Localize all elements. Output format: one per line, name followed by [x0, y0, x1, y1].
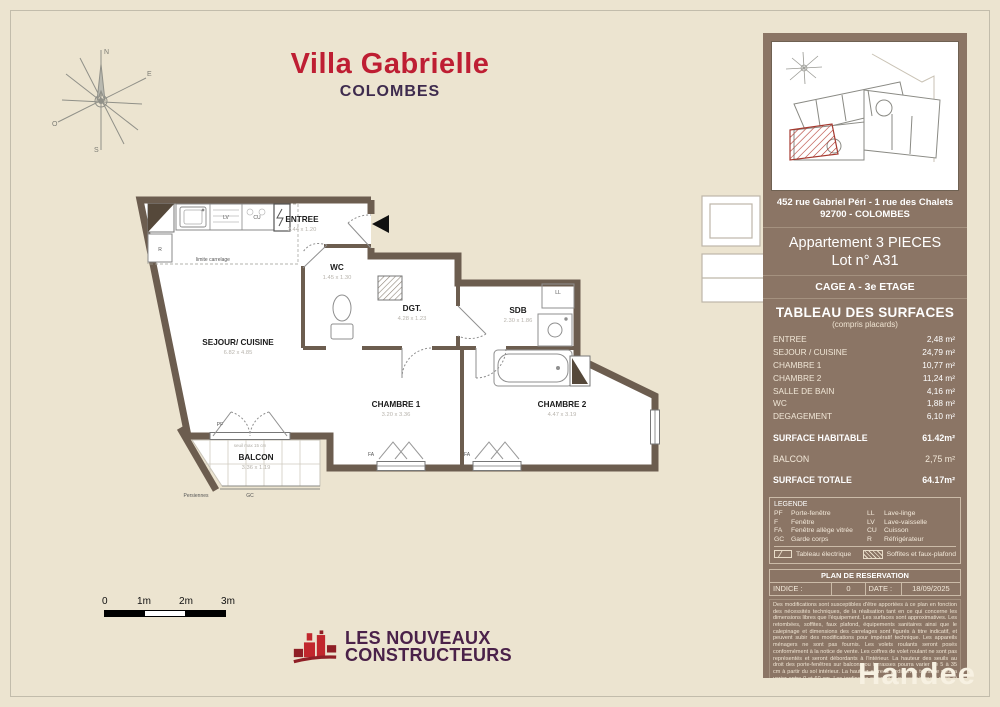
legend-label: Fenêtre — [791, 519, 867, 526]
label-ll: LL — [555, 290, 561, 296]
legend-soffites-label: Soffites et faux-plafond — [887, 551, 956, 558]
info-sidebar: 452 rue Gabriel Péri - 1 rue des Chalets… — [763, 33, 967, 678]
surface-habitable-value: 61.42m² — [922, 433, 955, 443]
floor-plan: ENTREE 2.44 x 1.20 WC 1.45 x 1.30 SEJOUR… — [110, 188, 790, 518]
surface-value: 10,77 m² — [922, 360, 955, 370]
room-label-balcon: BALCON — [238, 453, 273, 462]
label-gc: GC — [246, 493, 254, 499]
indice-label: INDICE : — [770, 583, 832, 595]
surface-label: SALLE DE BAIN — [773, 386, 834, 396]
compass-o-label: O — [52, 121, 58, 128]
surface-value: 6,10 m² — [927, 411, 955, 421]
surface-label: DEGAGEMENT — [773, 411, 832, 421]
address-block: 452 rue Gabriel Péri - 1 rue des Chalets… — [763, 191, 967, 228]
soffite-hatch-box — [378, 276, 402, 300]
residence-name: Villa Gabrielle — [240, 48, 540, 81]
room-dims-chambre1: 3.20 x 3.36 — [382, 412, 411, 418]
label-pf: PF — [217, 422, 223, 428]
subject-lot-highlight — [790, 124, 838, 160]
apartment-type: Appartement 3 PIECES — [763, 234, 967, 252]
surface-balcon-value: 2,75 m² — [925, 454, 955, 464]
scale-tick-2m: 2m — [176, 596, 196, 607]
surface-value: 1,88 m² — [927, 398, 955, 408]
surface-totale-label: SURFACE TOTALE — [773, 475, 852, 485]
legend-title: LEGENDE — [774, 501, 956, 508]
room-label-chambre1: CHAMBRE 1 — [372, 400, 421, 409]
room-dims-sejour: 6.82 x 4.85 — [224, 350, 253, 356]
legend-box: LEGENDE PFPorte-fenêtre LLLave-linge FFe… — [769, 497, 961, 564]
surface-row: SEJOUR / CUISINE24,79 m² — [763, 346, 967, 359]
room-label-sejour: SEJOUR/ CUISINE — [202, 338, 274, 347]
surface-label: WC — [773, 398, 787, 408]
title-block: Villa Gabrielle COLOMBES — [240, 48, 540, 101]
surface-habitable-row: SURFACE HABITABLE61.42m² — [763, 433, 967, 443]
legend-label: Cuisson — [884, 527, 956, 534]
legend-code: R — [867, 536, 884, 543]
builder-logo-icon — [292, 628, 338, 666]
site-plan-map — [772, 42, 958, 188]
label-fa-1: FA — [368, 452, 375, 458]
room-label-entree: ENTREE — [285, 215, 319, 224]
legend-label: Porte-fenêtre — [791, 510, 867, 517]
surfaces-table-title: TABLEAU DES SURFACES — [763, 305, 967, 320]
scale-bar: 0 1m 2m 3m — [102, 596, 238, 617]
legend-code: LV — [867, 519, 884, 526]
surface-row: ENTREE2,48 m² — [763, 333, 967, 346]
compass-rose-icon: N S E O — [46, 44, 156, 154]
surface-value: 24,79 m² — [922, 347, 955, 357]
surface-label: CHAMBRE 2 — [773, 373, 821, 383]
apartment-block: Appartement 3 PIECES Lot n° A31 — [763, 228, 967, 276]
room-dims-chambre2: 4.47 x 3.19 — [548, 412, 577, 418]
room-label-wc: WC — [330, 263, 344, 272]
legend-code: LL — [867, 510, 884, 517]
surface-totale-row: SURFACE TOTALE64.17m² — [763, 475, 967, 485]
surfaces-table-subtitle: (compris placards) — [763, 320, 967, 329]
room-dims-balcon: 3.36 x 1.19 — [242, 465, 271, 471]
legend-label: Lave-vaisselle — [884, 519, 956, 526]
legend-code: CU — [867, 527, 884, 534]
room-dims-entree: 2.44 x 1.20 — [288, 227, 317, 233]
compass-n-label: N — [104, 49, 109, 56]
room-label-chambre2: CHAMBRE 2 — [538, 400, 587, 409]
scale-tick-1m: 1m — [134, 596, 154, 607]
surface-row: DEGAGEMENT6,10 m² — [763, 410, 967, 423]
surface-value: 11,24 m² — [923, 373, 955, 383]
label-lv: LV — [223, 215, 229, 221]
date-value: 18/09/2025 — [902, 583, 960, 595]
thumb-compass-icon — [786, 52, 822, 84]
builder-logo: LES NOUVEAUX CONSTRUCTEURS — [292, 628, 512, 666]
surface-label: CHAMBRE 1 — [773, 360, 821, 370]
surfaces-table: ENTREE2,48 m² SEJOUR / CUISINE24,79 m² C… — [763, 333, 967, 485]
entrance-arrow-icon — [372, 215, 389, 233]
room-label-sdb: SDB — [509, 306, 526, 315]
builder-name-line2: CONSTRUCTEURS — [345, 647, 512, 664]
neighbor-structures — [702, 196, 766, 302]
guardrail — [220, 486, 320, 489]
legend-label: Garde corps — [791, 536, 867, 543]
surface-value: 4,16 m² — [927, 386, 955, 396]
room-dims-sdb: 2.30 x 1.86 — [504, 318, 533, 324]
scale-tick-3m: 3m — [218, 596, 238, 607]
soffite-hatch-icon — [863, 550, 883, 559]
stage-label: CAGE A - 3e ETAGE — [763, 276, 967, 299]
plan-sheet: N S E O Villa Gabrielle COLOMBES — [0, 0, 1000, 707]
scale-ticks: 0 1m 2m 3m — [102, 596, 238, 607]
scale-bar-graphic — [104, 610, 226, 617]
room-dims-wc: 1.45 x 1.30 — [323, 275, 352, 281]
site-plan-thumbnail — [771, 41, 959, 191]
surface-label: SEJOUR / CUISINE — [773, 347, 847, 357]
legend-label: Réfrigérateur — [884, 536, 956, 543]
legend-code: F — [774, 519, 791, 526]
reservation-row: INDICE : 0 DATE : 18/09/2025 — [769, 583, 961, 596]
builder-logo-text: LES NOUVEAUX CONSTRUCTEURS — [345, 630, 512, 664]
compass-e-label: E — [147, 71, 152, 78]
legend-code: GC — [774, 536, 791, 543]
legend-label: Lave-linge — [884, 510, 956, 517]
surface-row: WC1,88 m² — [763, 397, 967, 410]
surface-row: CHAMBRE 211,24 m² — [763, 371, 967, 384]
surface-balcon-label: BALCON — [773, 454, 809, 464]
legend-electrical-label: Tableau électrique — [796, 551, 851, 558]
indice-value: 0 — [832, 583, 865, 595]
surface-balcon-row: BALCON2,75 m² — [763, 454, 967, 464]
label-r: R — [158, 247, 162, 253]
reservation-block: PLAN DE RESERVATION INDICE : 0 DATE : 18… — [769, 569, 961, 596]
legend-code: PF — [774, 510, 791, 517]
lot-number: Lot n° A31 — [763, 252, 967, 270]
date-label: DATE : — [866, 583, 902, 595]
watermark: Handee — [858, 656, 976, 692]
electrical-panel-icon — [774, 550, 792, 558]
reservation-title: PLAN DE RESERVATION — [769, 569, 961, 583]
label-fa-2: FA — [464, 452, 471, 458]
address-line2: 92700 - COLOMBES — [765, 209, 965, 221]
label-persiennes: Persiennes — [183, 493, 209, 499]
legend-code: FA — [774, 527, 791, 534]
legend-symbols-row: Tableau électrique Soffites et faux-plaf… — [774, 546, 956, 559]
surface-row: CHAMBRE 110,77 m² — [763, 359, 967, 372]
label-limite-carrelage: limite carrelage — [196, 257, 230, 263]
room-label-dgt: DGT. — [403, 304, 422, 313]
scale-tick-0: 0 — [102, 596, 112, 607]
surface-habitable-label: SURFACE HABITABLE — [773, 433, 868, 443]
label-seuil: seuil max 15 cm — [234, 443, 267, 448]
label-cu: CU — [253, 215, 261, 221]
residence-city: COLOMBES — [240, 83, 540, 101]
corner-duct — [570, 356, 590, 386]
legend-label: Fenêtre allège vitrée — [791, 527, 867, 534]
surface-totale-value: 64.17m² — [922, 475, 955, 485]
compass-s-label: S — [94, 147, 99, 154]
room-dims-dgt: 4.28 x 1.23 — [398, 316, 427, 322]
legend-grid: PFPorte-fenêtre LLLave-linge FFenêtre LV… — [774, 510, 956, 543]
surface-label: ENTREE — [773, 334, 807, 344]
surface-row: SALLE DE BAIN4,16 m² — [763, 384, 967, 397]
address-line1: 452 rue Gabriel Péri - 1 rue des Chalets — [765, 197, 965, 209]
surface-value: 2,48 m² — [927, 334, 955, 344]
